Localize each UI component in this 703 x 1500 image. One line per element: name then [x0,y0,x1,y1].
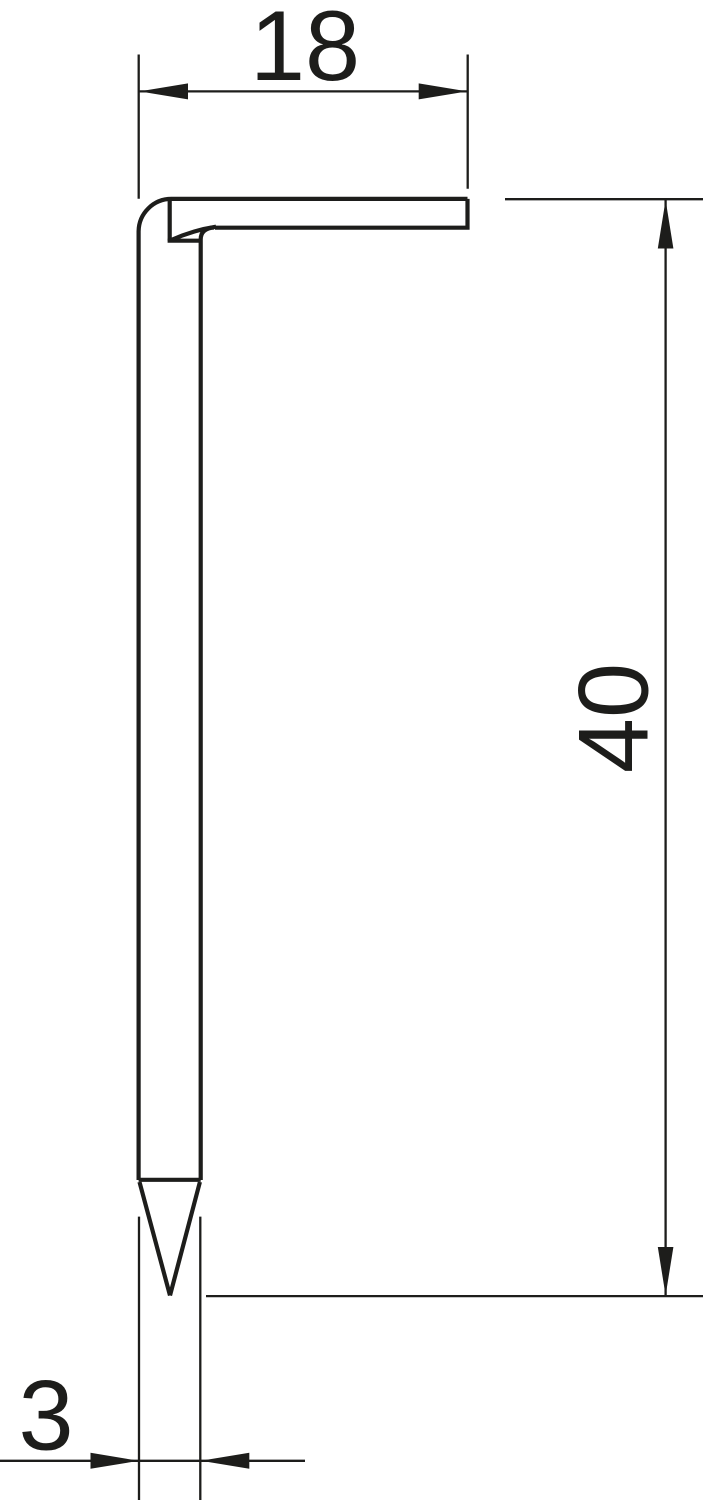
svg-text:40: 40 [558,663,669,773]
svg-text:18: 18 [250,0,360,101]
svg-text:3: 3 [18,1360,73,1471]
